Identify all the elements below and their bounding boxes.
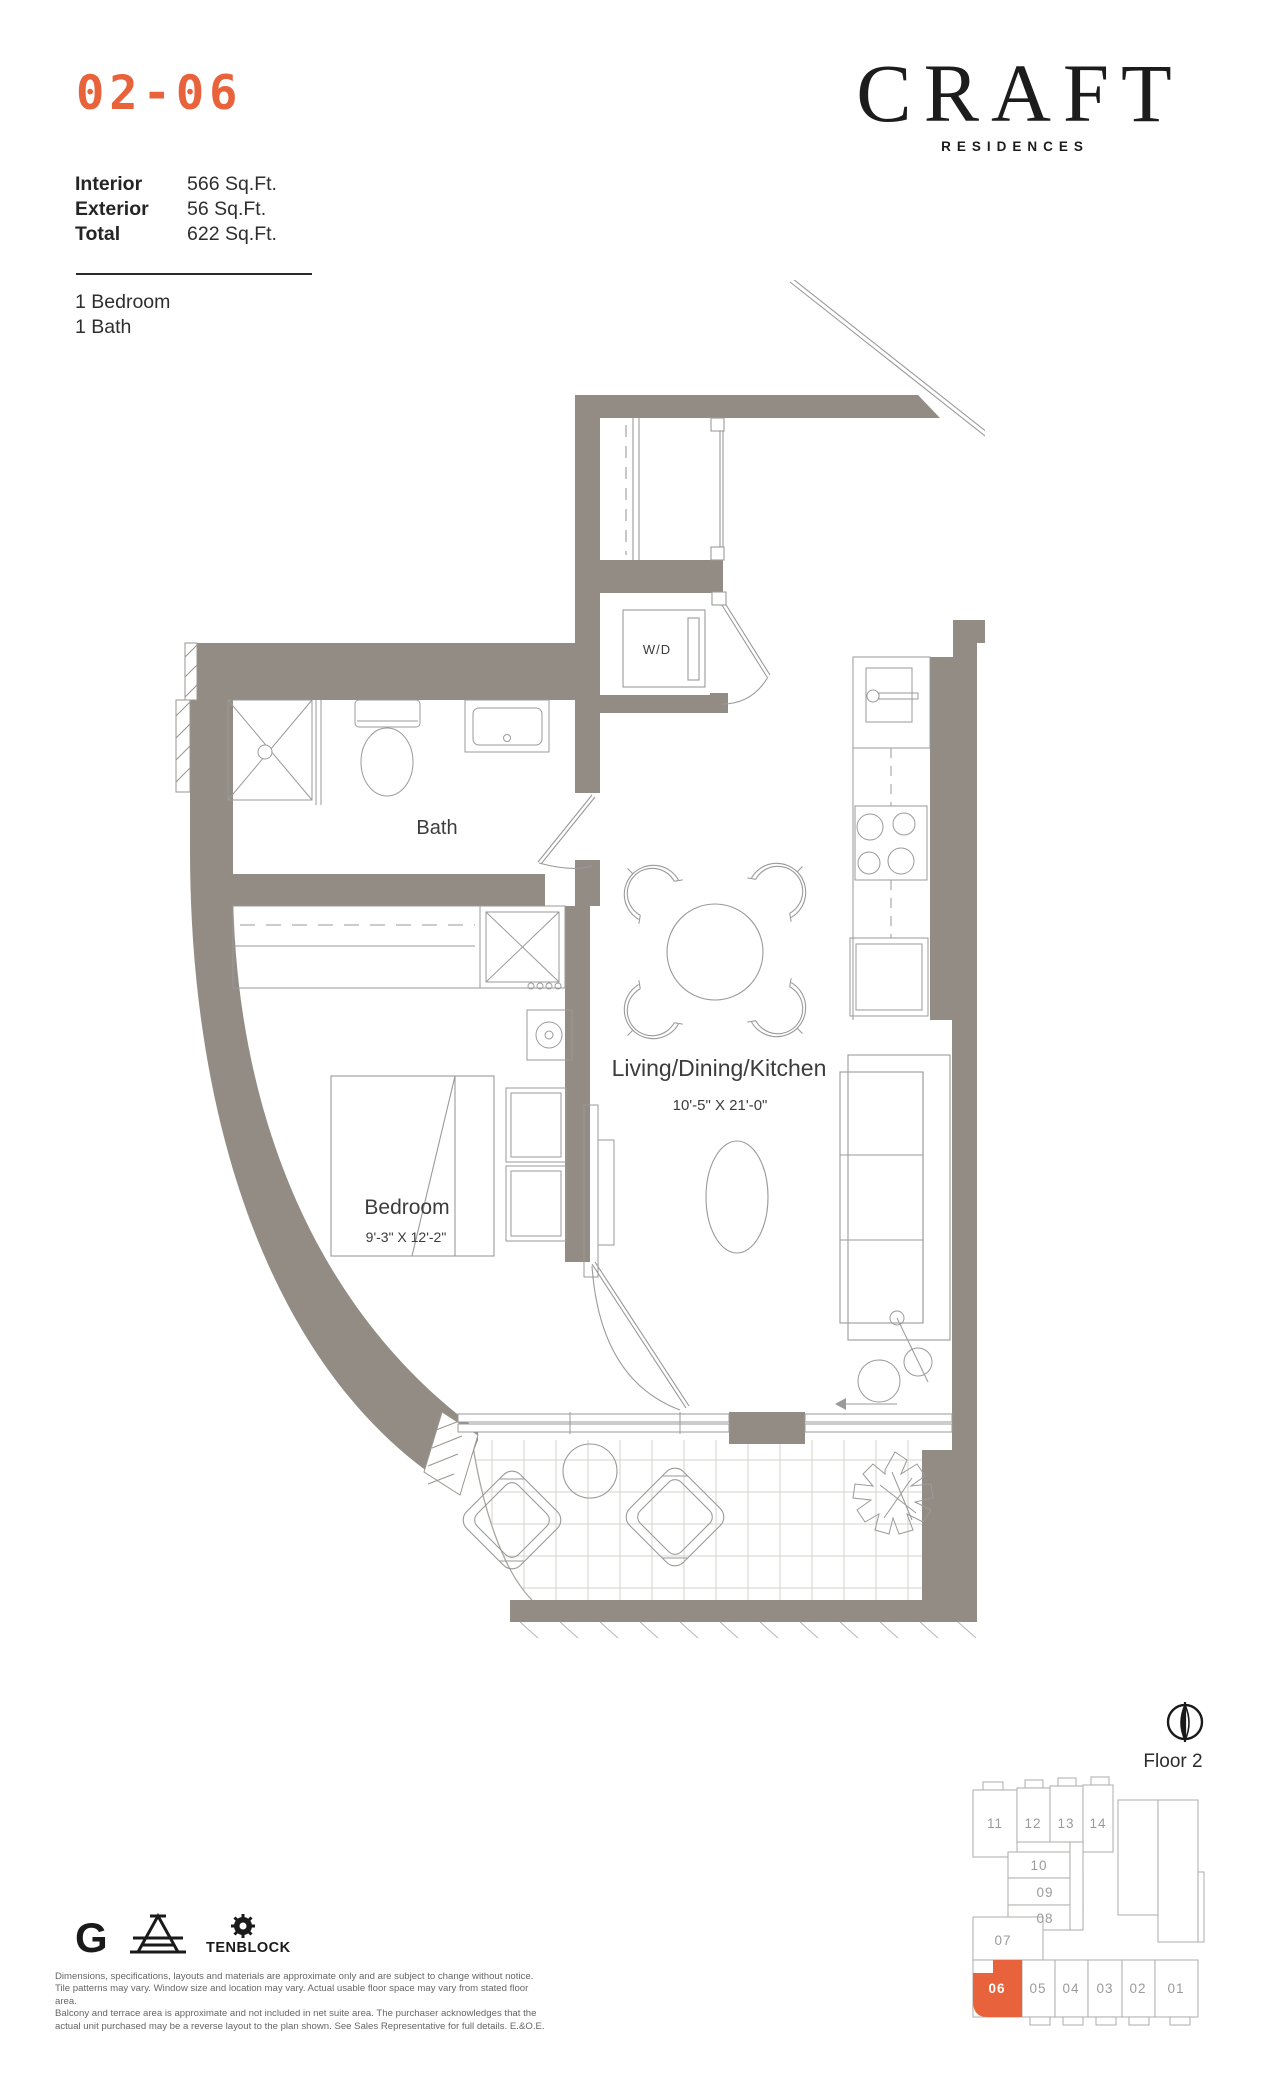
unit-number: 02-06 (76, 66, 242, 121)
living-label: Living/Dining/Kitchen (612, 1055, 827, 1081)
fact-label: Total (75, 222, 187, 247)
balcony-chair (621, 1463, 728, 1570)
disclaimer-line: Balcony and terrace area is approximate … (55, 2008, 547, 2020)
unit-cell: 09 (1036, 1885, 1053, 1900)
sofa (840, 1055, 950, 1340)
unit-cell: 11 (987, 1816, 1003, 1831)
unit-cell: 03 (1096, 1981, 1113, 1996)
balcony-side-table (563, 1444, 617, 1498)
unit-cell: 01 (1167, 1981, 1184, 1996)
floorplan-sheet: 02-06 Interior 566 Sq.Ft. Exterior 56 Sq… (0, 0, 1275, 2100)
unit-cell: 04 (1062, 1981, 1079, 1996)
keyplate: Floor 2 11 (955, 1690, 1217, 2050)
unit-cell: 07 (994, 1933, 1011, 1948)
bedroom-label: Bedroom (364, 1196, 449, 1219)
unit-cell-highlighted: 06 (988, 1981, 1005, 1996)
kitchen (850, 657, 930, 1020)
shower (228, 700, 321, 805)
fact-row-total: Total 622 Sq.Ft. (75, 222, 277, 247)
coffee-table (706, 1141, 768, 1253)
fact-value: 56 Sq.Ft. (187, 197, 266, 222)
disclaimer-line: Dimensions, specifications, layouts and … (55, 1971, 547, 1983)
walls (190, 395, 985, 1622)
toilet (355, 700, 420, 796)
bath-door (538, 795, 595, 868)
fact-row-exterior: Exterior 56 Sq.Ft. (75, 197, 277, 222)
dining-table (667, 904, 763, 1000)
living-dims: 10'-5" X 21'-0" (673, 1097, 768, 1114)
unit-cell: 13 (1057, 1816, 1074, 1831)
potted-plant (853, 1452, 933, 1534)
divider-rule (76, 273, 312, 275)
tenblock-gear-icon (231, 1914, 255, 1938)
floor-plan: W/D Bath (140, 280, 985, 1648)
unit-cell: 05 (1029, 1981, 1046, 1996)
brand-tagline: RESIDENCES (810, 139, 1220, 154)
bath-label: Bath (416, 817, 457, 839)
kitchen-sink-counter (853, 657, 930, 748)
developer-logos: G TENBLOCK (70, 1908, 390, 1960)
balcony-floor-tiles (460, 1430, 930, 1605)
dining-set (606, 845, 825, 1058)
top-wall (575, 395, 940, 418)
nightstand-dressers (506, 1088, 566, 1241)
g-logo: G (75, 1914, 108, 1960)
dining-chair (747, 978, 824, 1055)
disclaimer-line: actual unit purchased may be a reverse l… (55, 2021, 547, 2033)
fact-row-interior: Interior 566 Sq.Ft. (75, 172, 277, 197)
disclaimer-text: Dimensions, specifications, layouts and … (55, 1971, 547, 2033)
area-facts: Interior 566 Sq.Ft. Exterior 56 Sq.Ft. T… (75, 172, 277, 247)
unit-cell: 08 (1036, 1911, 1053, 1926)
fridge (850, 938, 928, 1016)
a-bridge-logo (130, 1916, 186, 1952)
dining-chair (747, 845, 824, 922)
fact-label: Exterior (75, 197, 187, 222)
vanity-sink (465, 700, 549, 752)
floor-lamp (858, 1311, 932, 1402)
brand-wordmark: CRAFT (820, 50, 1220, 137)
bedroom-dims: 9'-3" X 12'-2" (366, 1229, 447, 1245)
entry-closet (626, 418, 724, 560)
storage-shelf (480, 906, 565, 989)
tenblock-logo: TENBLOCK (206, 1940, 291, 1956)
fact-label: Interior (75, 172, 187, 197)
bedroom-door (592, 1262, 689, 1410)
disclaimer-line: Tile patterns may vary. Window size and … (55, 1983, 547, 2008)
unit-cell: 12 (1024, 1816, 1041, 1831)
wd-label: W/D (643, 642, 671, 657)
bedroom-sliding-window (458, 1412, 729, 1434)
brand-logo: CRAFT RESIDENCES (810, 50, 1220, 154)
unit-cell: 02 (1129, 1981, 1146, 1996)
dining-chair (606, 980, 683, 1057)
fact-value: 622 Sq.Ft. (187, 222, 277, 247)
balcony-chair (458, 1466, 565, 1573)
compass-icon (1168, 1702, 1202, 1742)
unit-cell: 10 (1030, 1858, 1047, 1873)
living-sliding-door (805, 1398, 952, 1432)
kitchen-sink (866, 668, 912, 722)
dining-chair (606, 847, 683, 924)
unit-cell: 14 (1089, 1816, 1106, 1831)
floor-label: Floor 2 (1143, 1751, 1202, 1772)
bedroom-closet (233, 906, 480, 988)
fact-value: 566 Sq.Ft. (187, 172, 277, 197)
